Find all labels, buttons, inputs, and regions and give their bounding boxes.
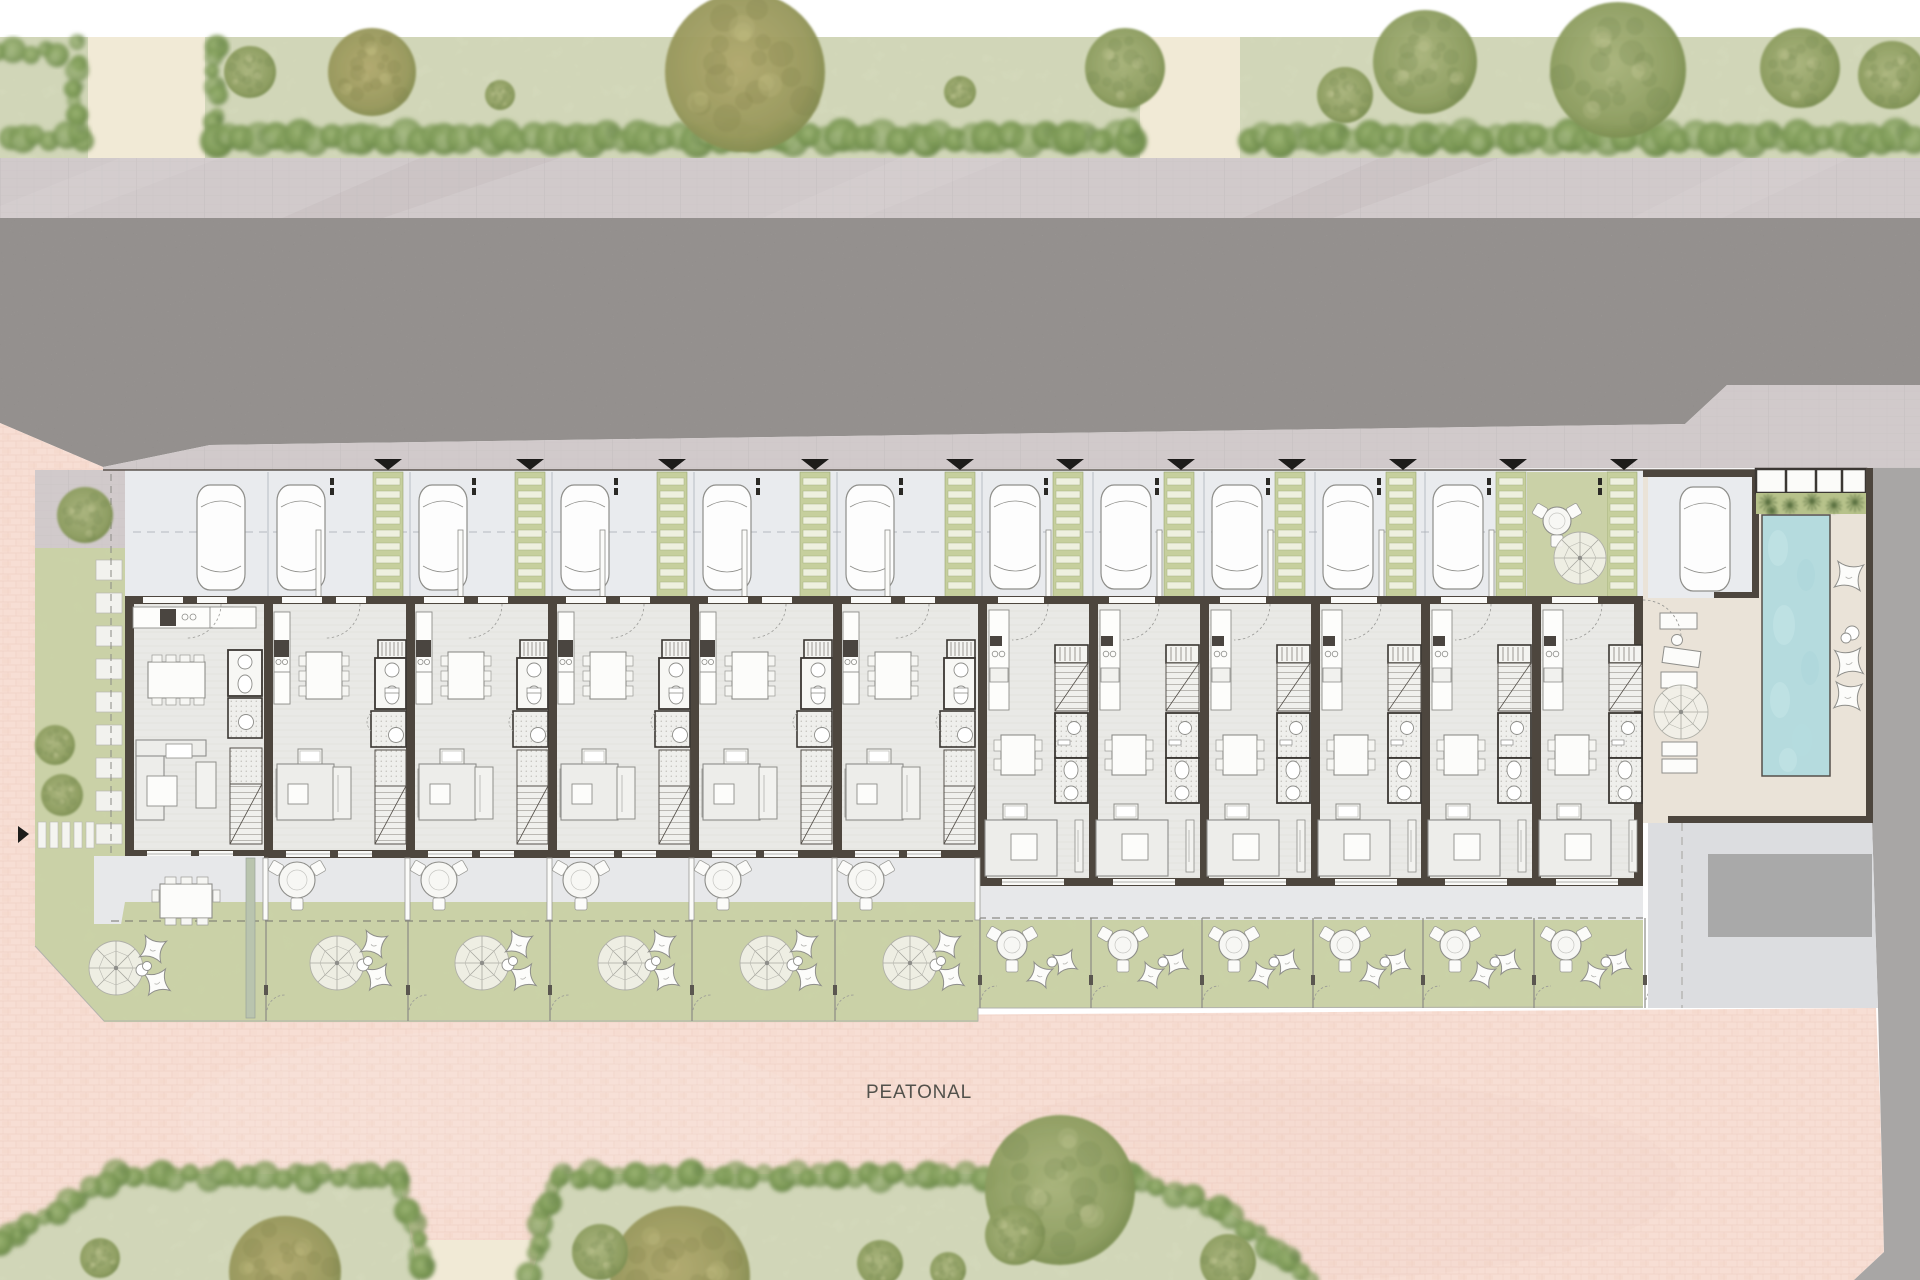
svg-text:PEATONAL: PEATONAL bbox=[866, 1082, 972, 1103]
